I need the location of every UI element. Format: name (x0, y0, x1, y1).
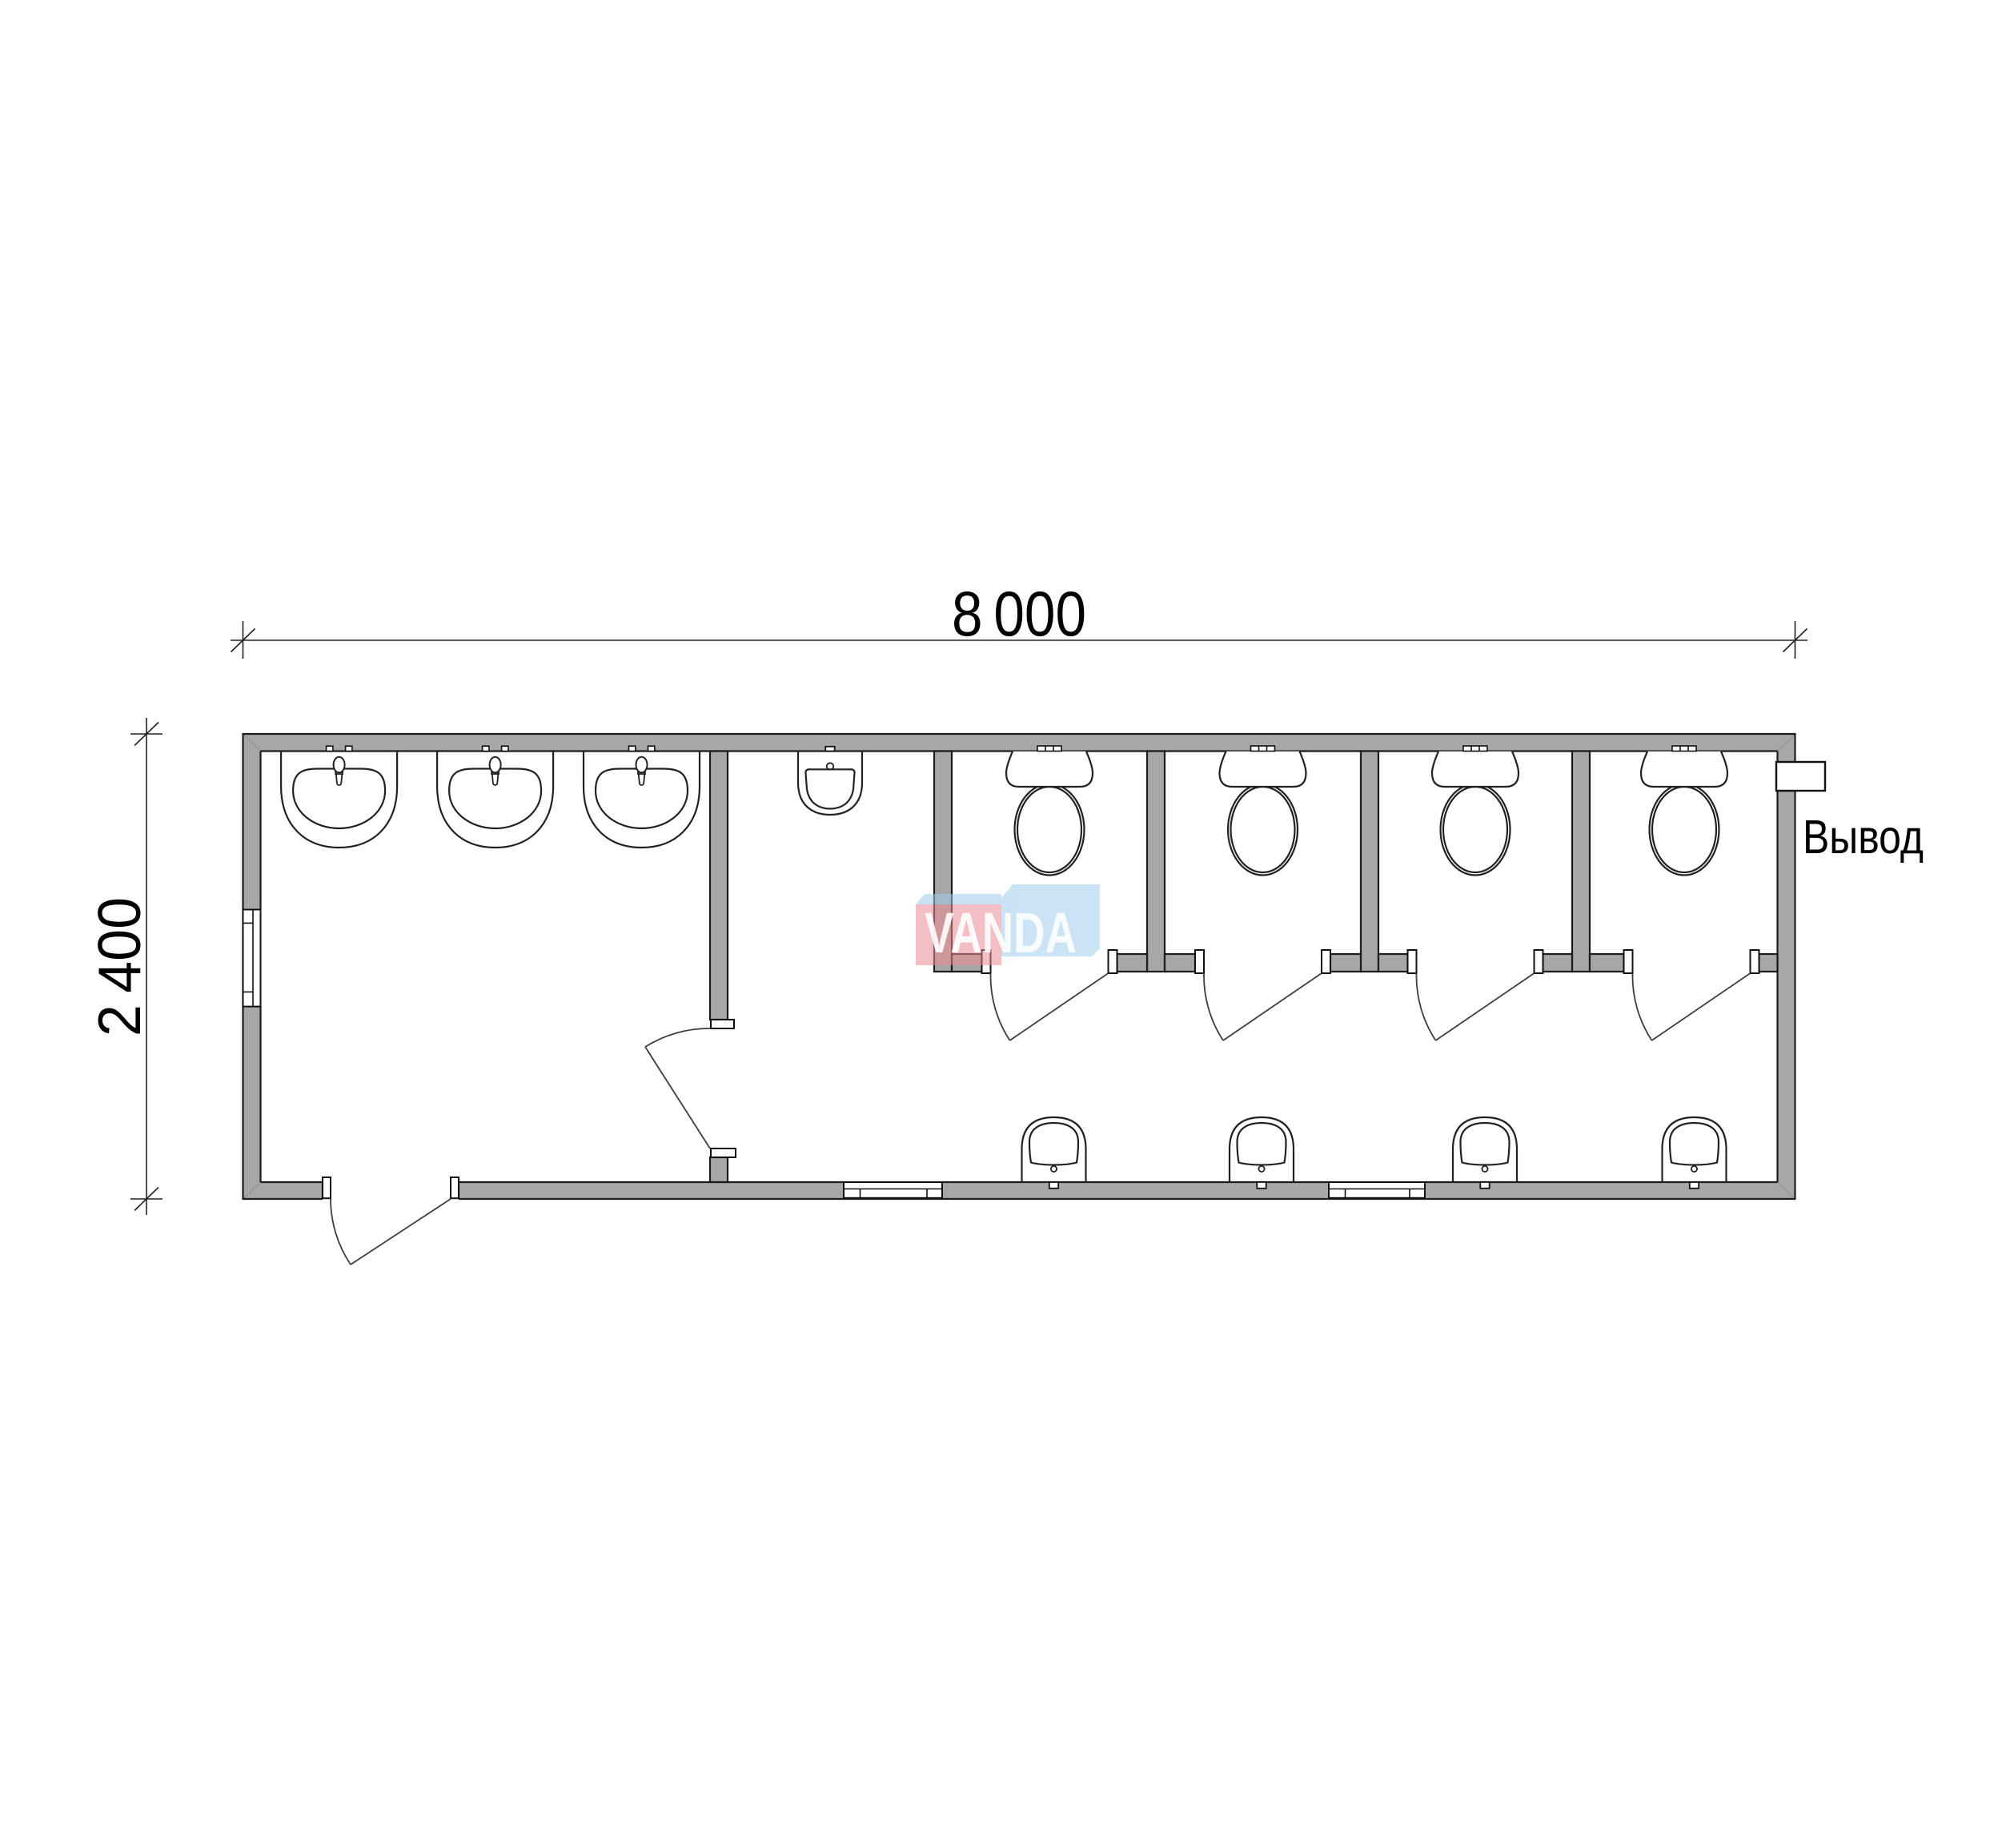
svg-text:2 400: 2 400 (86, 897, 153, 1036)
svg-text:Вывод: Вывод (1803, 811, 1924, 864)
svg-text:8 000: 8 000 (952, 578, 1086, 649)
svg-text:VANDA: VANDA (925, 902, 1077, 965)
